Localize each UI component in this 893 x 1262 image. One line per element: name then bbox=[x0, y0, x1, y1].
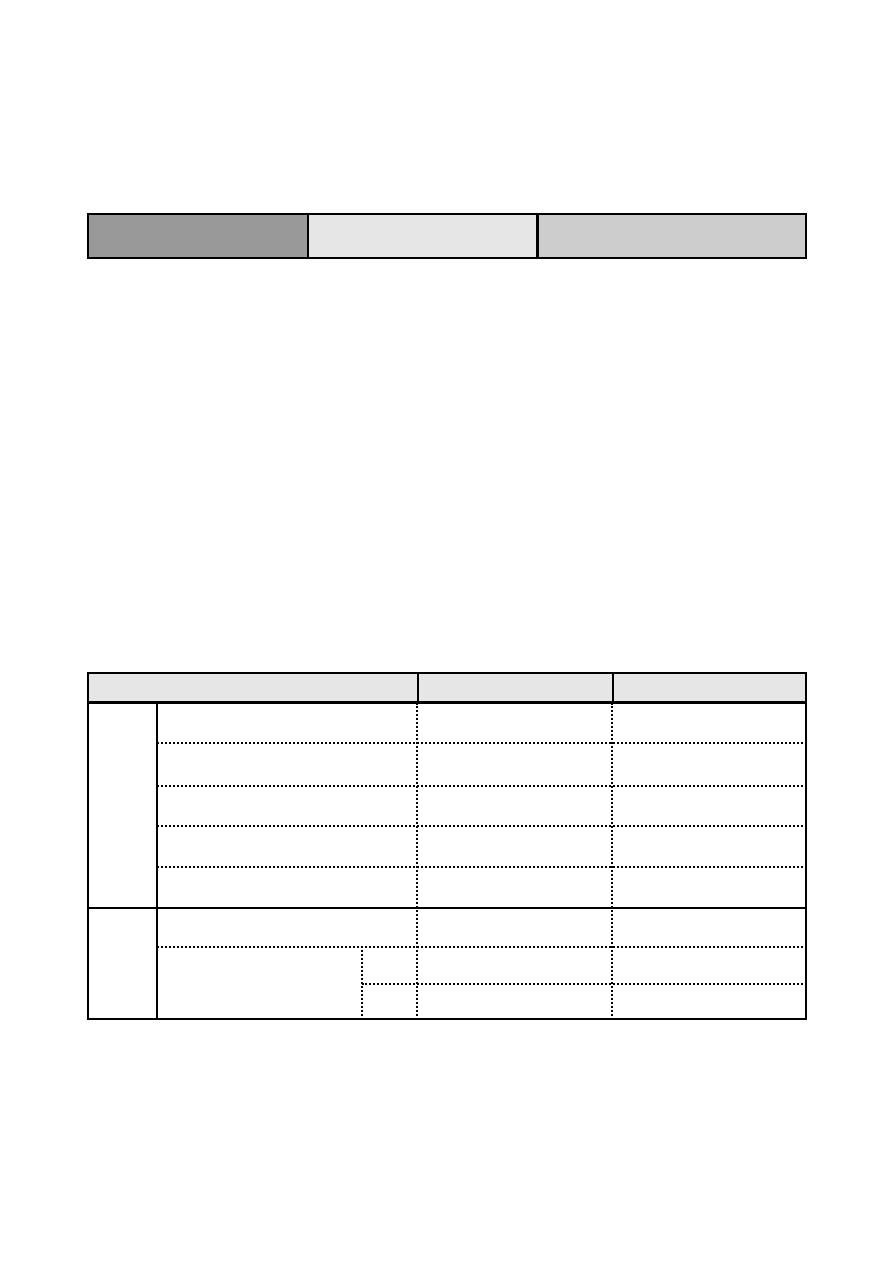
content-table bbox=[87, 672, 807, 1020]
document-page bbox=[0, 0, 893, 1262]
top-bar-cell-light bbox=[307, 215, 536, 257]
table-outer-border bbox=[87, 672, 807, 1020]
top-bar-cell-medium bbox=[536, 215, 805, 257]
top-header-bar bbox=[87, 213, 807, 259]
top-bar-cell-dark bbox=[89, 215, 307, 257]
